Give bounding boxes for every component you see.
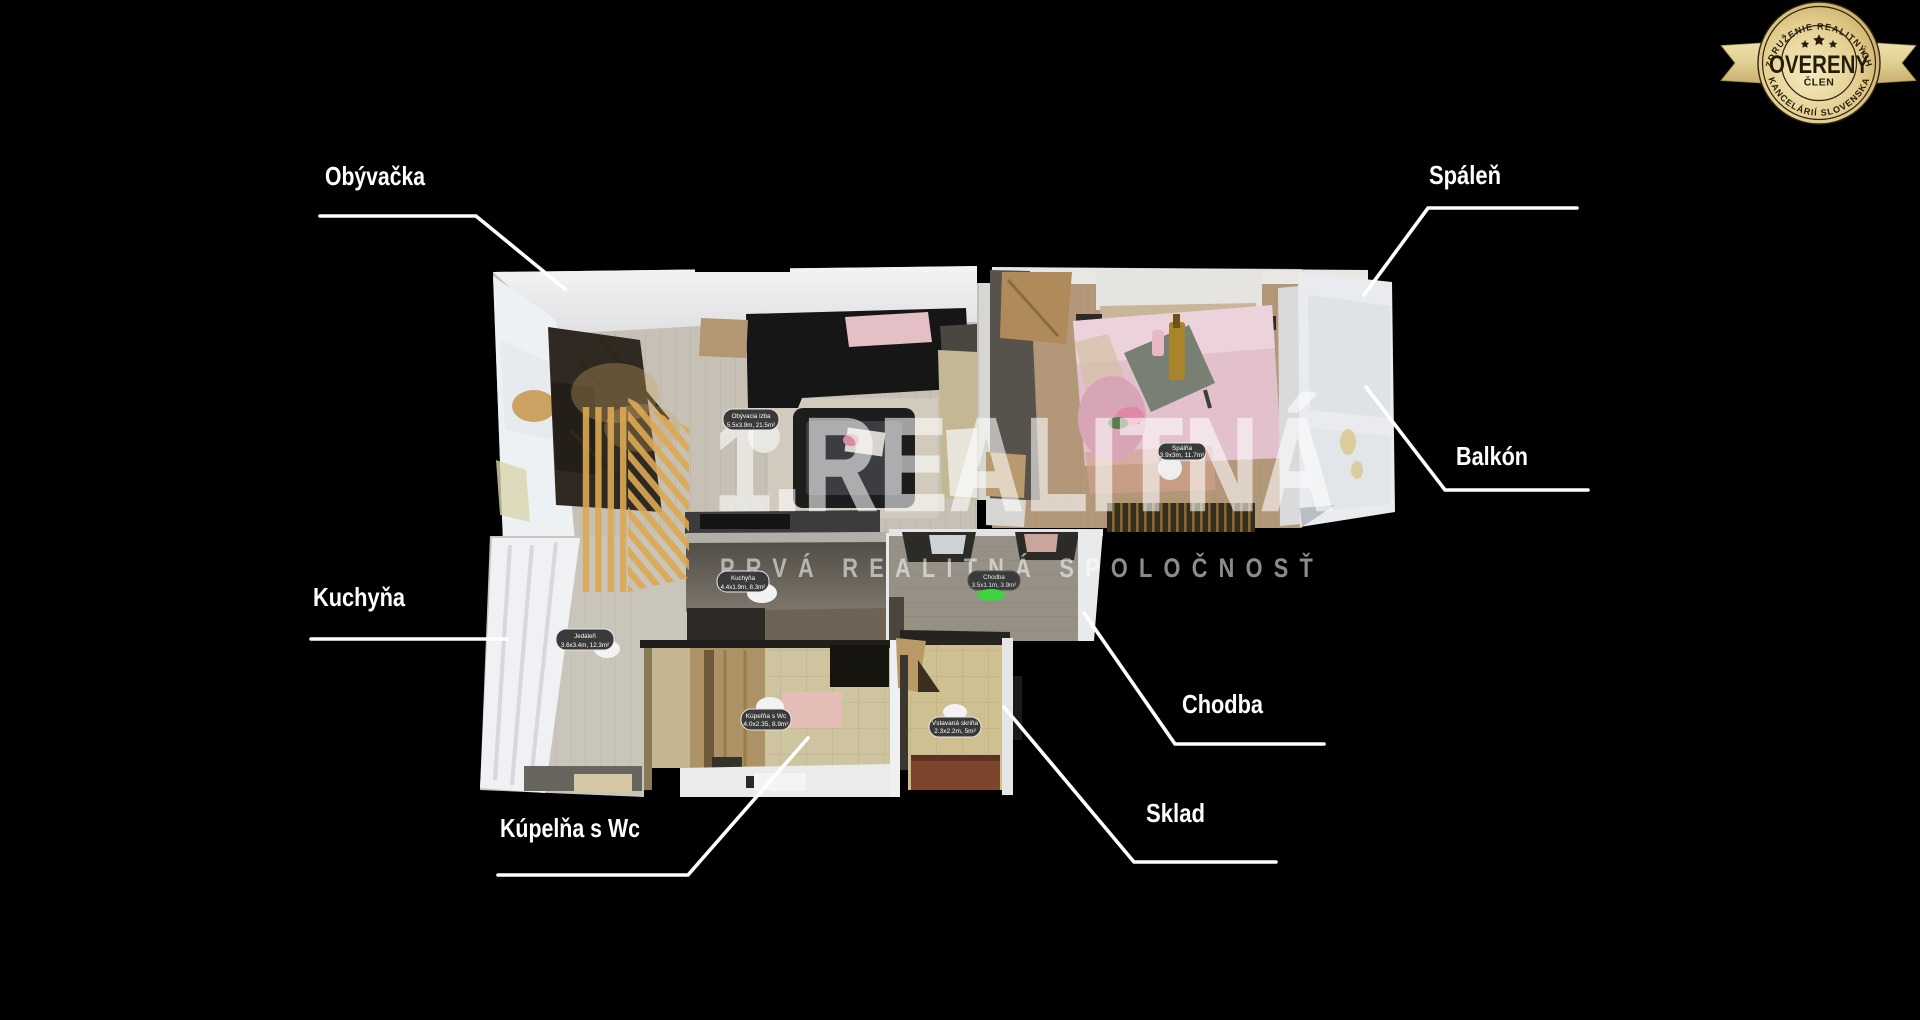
svg-text:Chodba: Chodba bbox=[983, 574, 1005, 581]
svg-text:3.5x1.1m, 3.9m²: 3.5x1.1m, 3.9m² bbox=[972, 582, 1017, 589]
svg-text:Balkón: Balkón bbox=[1456, 441, 1528, 471]
svg-text:5.5x3.9m, 21.5m²: 5.5x3.9m, 21.5m² bbox=[727, 422, 775, 429]
svg-text:Kúpeľňa s Wc: Kúpeľňa s Wc bbox=[746, 713, 787, 720]
svg-text:OVERENÝ: OVERENÝ bbox=[1769, 49, 1869, 79]
svg-text:Vstavaná skriňa: Vstavaná skriňa bbox=[932, 720, 979, 727]
svg-text:2.3x2.2m, 5m²: 2.3x2.2m, 5m² bbox=[934, 728, 976, 735]
svg-text:Kuchyňa: Kuchyňa bbox=[313, 582, 405, 612]
svg-text:Obývacia izba: Obývacia izba bbox=[732, 413, 771, 420]
svg-text:Sklad: Sklad bbox=[1146, 798, 1205, 828]
svg-text:Kuchyňa: Kuchyňa bbox=[731, 575, 756, 582]
svg-text:Jedáleň: Jedáleň bbox=[574, 633, 596, 640]
svg-text:ČLEN: ČLEN bbox=[1804, 76, 1835, 89]
svg-text:Spálňa: Spálňa bbox=[1172, 445, 1193, 452]
svg-text:4.0x2.35, 8.9m²: 4.0x2.35, 8.9m² bbox=[743, 721, 789, 728]
svg-text:3.9x3m, 11.7m²: 3.9x3m, 11.7m² bbox=[1160, 452, 1206, 459]
svg-text:PRVÁ REALITNÁ SPOLOČNOSŤ: PRVÁ REALITNÁ SPOLOČNOSŤ bbox=[720, 552, 1324, 583]
svg-text:Spáleň: Spáleň bbox=[1429, 160, 1501, 190]
svg-text:Obývačka: Obývačka bbox=[325, 161, 425, 191]
svg-text:Kúpelňa s Wc: Kúpelňa s Wc bbox=[500, 813, 640, 843]
svg-text:Chodba: Chodba bbox=[1182, 689, 1263, 719]
svg-text:1.REALITNÁ: 1.REALITNÁ bbox=[714, 391, 1336, 538]
svg-text:4.4x1.9m, 8.3m²: 4.4x1.9m, 8.3m² bbox=[721, 584, 766, 591]
svg-text:3.6x3.4m, 12.3m²: 3.6x3.4m, 12.3m² bbox=[561, 642, 609, 649]
